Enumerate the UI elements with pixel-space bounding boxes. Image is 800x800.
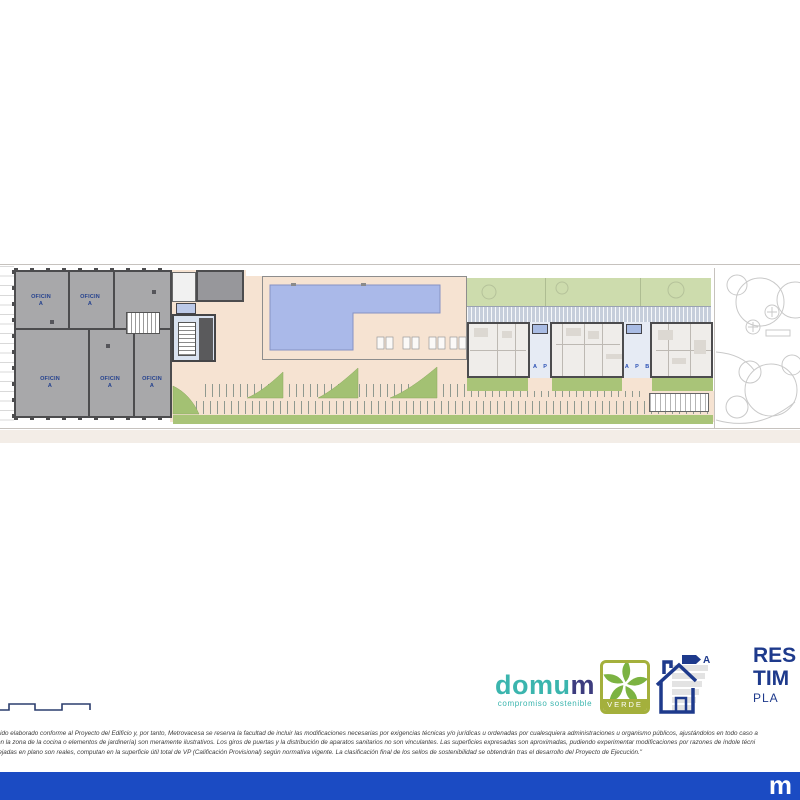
verde-badge: VERDE bbox=[600, 660, 650, 714]
garden-trees bbox=[482, 282, 684, 299]
domum-logo: domum compromiso sostenible bbox=[495, 672, 595, 708]
sun-loungers bbox=[377, 337, 466, 349]
verde-label: VERDE bbox=[603, 699, 647, 711]
energy-scale-bars bbox=[672, 665, 708, 711]
project-title-line1: RES bbox=[753, 644, 800, 667]
domum-tagline: compromiso sostenible bbox=[495, 699, 595, 708]
project-title-line2: TIM bbox=[753, 667, 800, 690]
domum-prefix: domu bbox=[495, 670, 571, 700]
pool-ladder-icon bbox=[361, 283, 366, 286]
energy-rating-label: A bbox=[703, 655, 710, 666]
project-title-line3: PLA bbox=[753, 690, 800, 706]
energy-rating-house-icon: A bbox=[652, 650, 712, 718]
disclaimer-line-3: lejadas en plano son reales, computan en… bbox=[0, 748, 800, 757]
park-trees bbox=[716, 275, 800, 423]
pool-ladder-icon bbox=[291, 283, 296, 286]
site-key-outline bbox=[0, 704, 90, 710]
planters bbox=[173, 367, 437, 414]
project-title: RES TIM PLA bbox=[753, 644, 800, 706]
legal-disclaimer: sido elaborado conforme al Proyecto del … bbox=[0, 729, 800, 757]
park-bench bbox=[766, 330, 790, 336]
rating-arrow-icon bbox=[682, 655, 701, 664]
plan-sheet-page: OFICINA OFICINA OFICINA OFICINA OFICINA bbox=[0, 0, 800, 800]
domum-suffix: m bbox=[571, 670, 596, 700]
disclaimer-line-1: sido elaborado conforme al Proyecto del … bbox=[0, 729, 800, 738]
disclaimer-line-2: en la zona de la cocina o elementos de j… bbox=[0, 738, 800, 747]
domum-wordmark: domum bbox=[495, 672, 595, 698]
metrovacesa-logo-initial: m bbox=[769, 772, 792, 799]
verde-pinwheel-icon bbox=[603, 663, 647, 703]
footer-brand-bar: m bbox=[0, 772, 800, 800]
